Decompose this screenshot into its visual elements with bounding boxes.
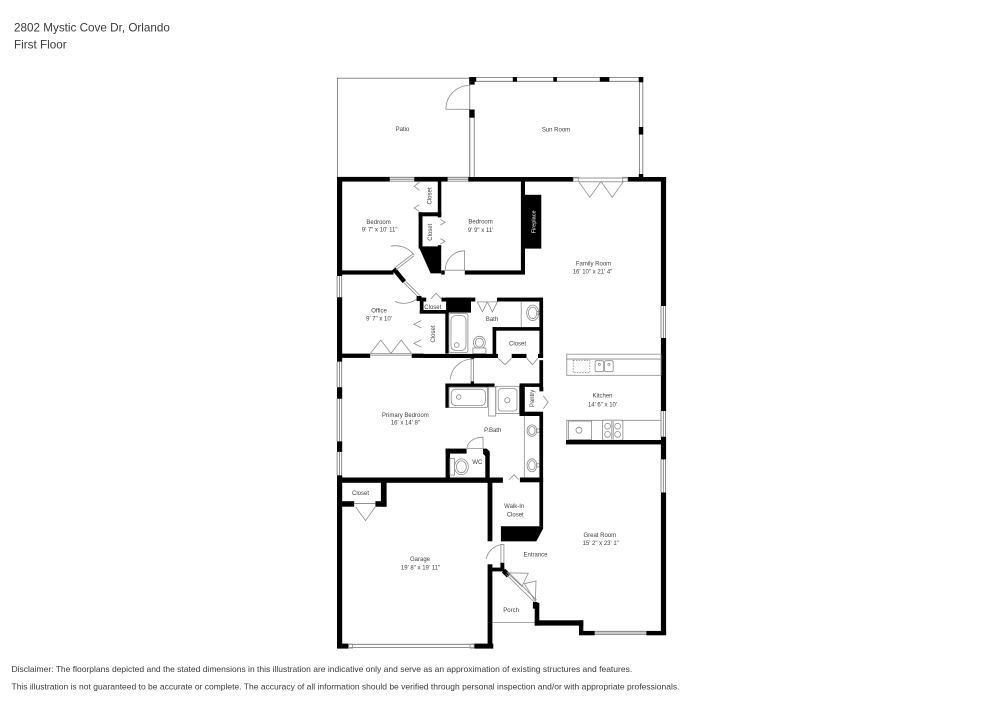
svg-text:Closet: Closet [428,223,434,240]
svg-text:15' 2" x 23' 1": 15' 2" x 23' 1" [583,541,619,547]
svg-text:19' 8" x 19' 11": 19' 8" x 19' 11" [401,566,440,572]
svg-text:First Floor: First Floor [14,39,67,52]
svg-text:16' x 14' 8": 16' x 14' 8" [391,421,420,427]
svg-text:Closet: Closet [507,512,524,518]
svg-text:9' 7" x 10' 11": 9' 7" x 10' 11" [362,227,398,233]
svg-text:Closet: Closet [424,305,441,311]
svg-text:Sun Room: Sun Room [542,128,570,134]
svg-text:Closet: Closet [431,325,437,342]
svg-text:Bedroom: Bedroom [468,220,492,226]
svg-text:Entrance: Entrance [523,552,548,558]
svg-text:Closet: Closet [352,491,369,497]
svg-text:P.Bath: P.Bath [484,428,501,434]
svg-text:Patio: Patio [396,127,410,133]
svg-text:Fireplace: Fireplace [532,210,538,233]
svg-text:2802 Mystic Cove Dr, Orlando: 2802 Mystic Cove Dr, Orlando [14,22,170,35]
svg-text:Closet: Closet [428,187,434,204]
svg-text:9' 9" x 11': 9' 9" x 11' [468,228,493,234]
svg-text:Disclaimer: The floorplans dep: Disclaimer: The floorplans depicted and … [12,664,633,674]
svg-text:Primary Bedroom: Primary Bedroom [382,413,429,419]
svg-text:16' 10" x 21' 4": 16' 10" x 21' 4" [573,270,613,276]
svg-text:Closet: Closet [509,342,526,348]
svg-text:Great Room: Great Room [583,533,616,539]
svg-text:Kitchen: Kitchen [592,393,612,399]
svg-text:Pantry: Pantry [530,390,536,407]
svg-text:Walk-In: Walk-In [504,504,524,510]
svg-text:Office: Office [371,309,387,315]
svg-text:Porch: Porch [503,608,519,614]
svg-text:14' 6" x 10': 14' 6" x 10' [588,403,617,409]
svg-text:9' 7" x 10': 9' 7" x 10' [366,316,392,322]
svg-text:Family Room: Family Room [576,261,611,267]
svg-text:Bedroom: Bedroom [366,220,390,226]
svg-text:WC: WC [472,460,483,466]
svg-text:This illustration is not guara: This illustration is not guaranteed to b… [12,682,680,692]
svg-text:Garage: Garage [410,557,431,563]
svg-text:Bath: Bath [486,317,498,323]
